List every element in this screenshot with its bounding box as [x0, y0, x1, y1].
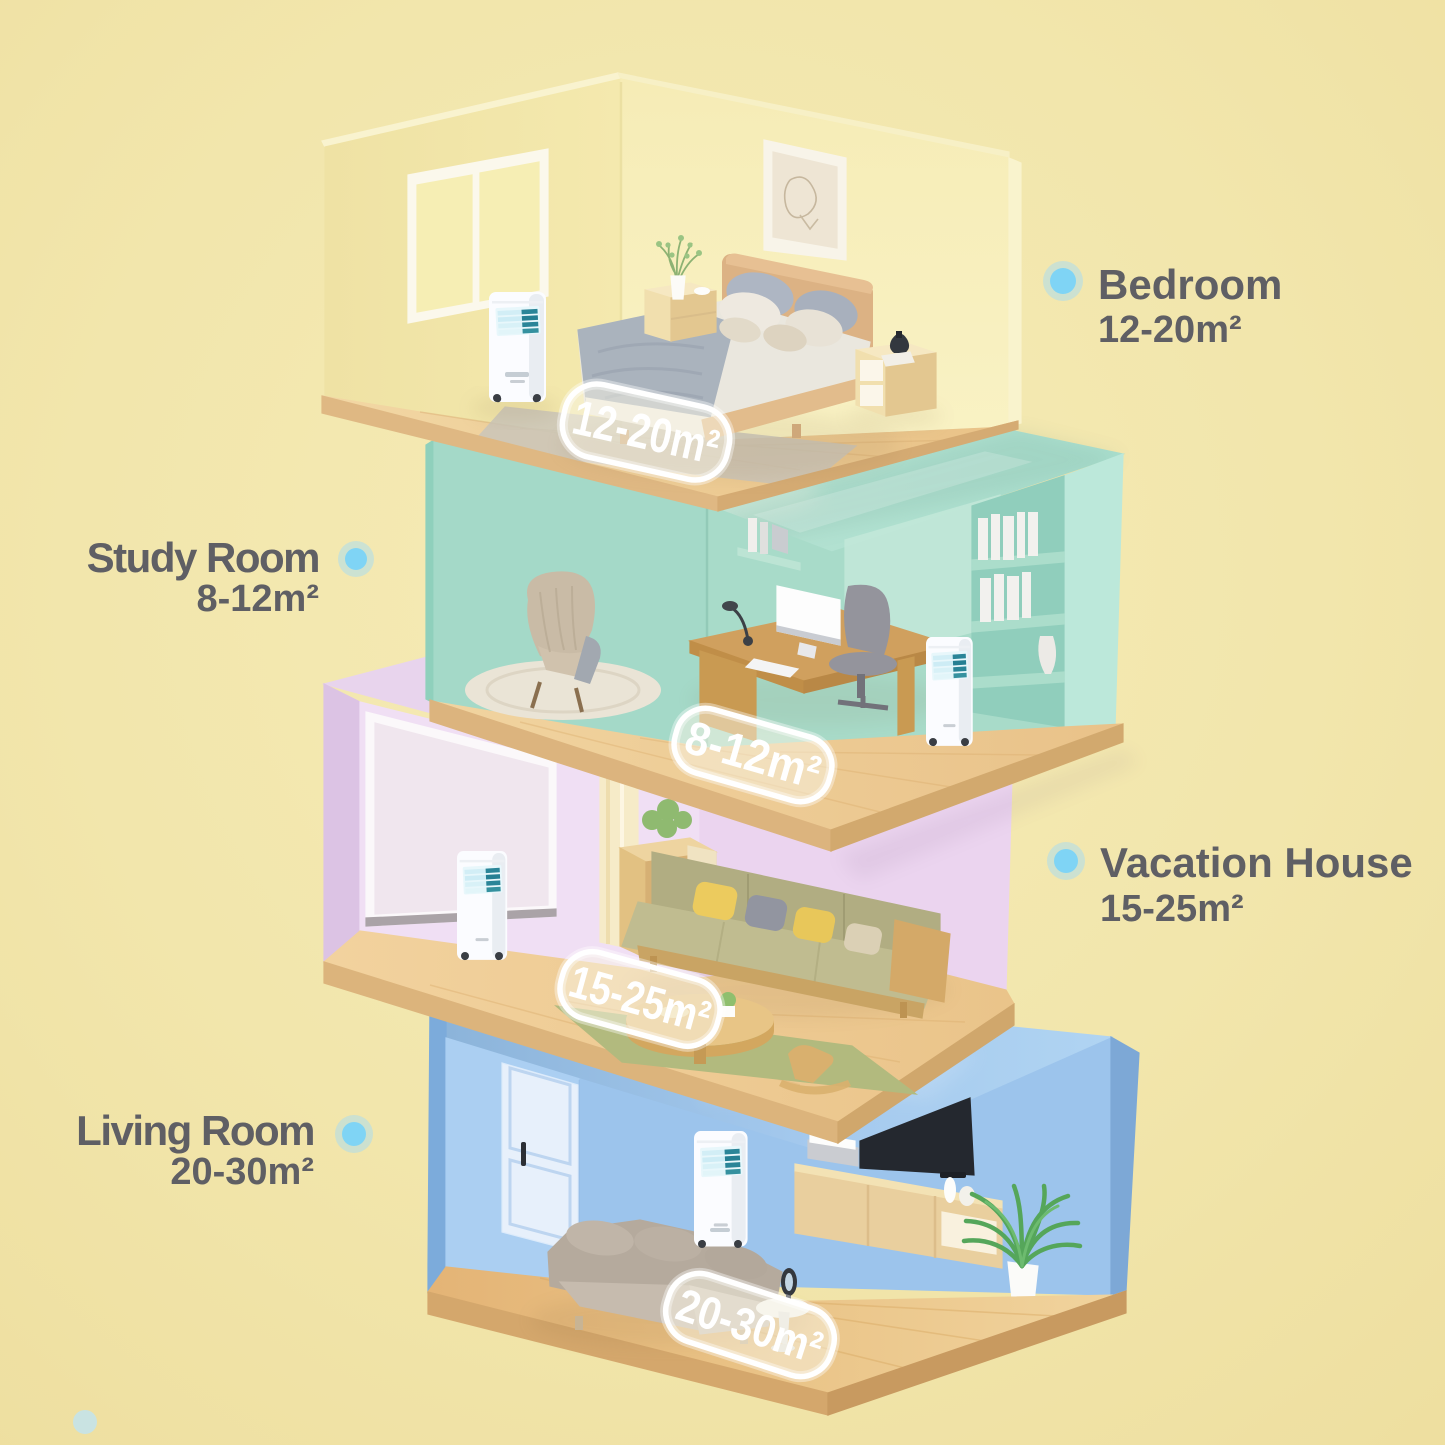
svg-text:Living Room: Living Room [76, 1107, 314, 1154]
svg-text:12-20m²: 12-20m² [1098, 309, 1242, 351]
svg-text:Bedroom: Bedroom [1098, 261, 1282, 308]
svg-text:Study Room: Study Room [87, 534, 319, 581]
svg-text:15-25m²: 15-25m² [1100, 888, 1244, 930]
svg-text:Vacation House: Vacation House [1100, 839, 1413, 886]
svg-text:8-12m²: 8-12m² [197, 578, 320, 620]
svg-text:20-30m²: 20-30m² [170, 1151, 314, 1193]
